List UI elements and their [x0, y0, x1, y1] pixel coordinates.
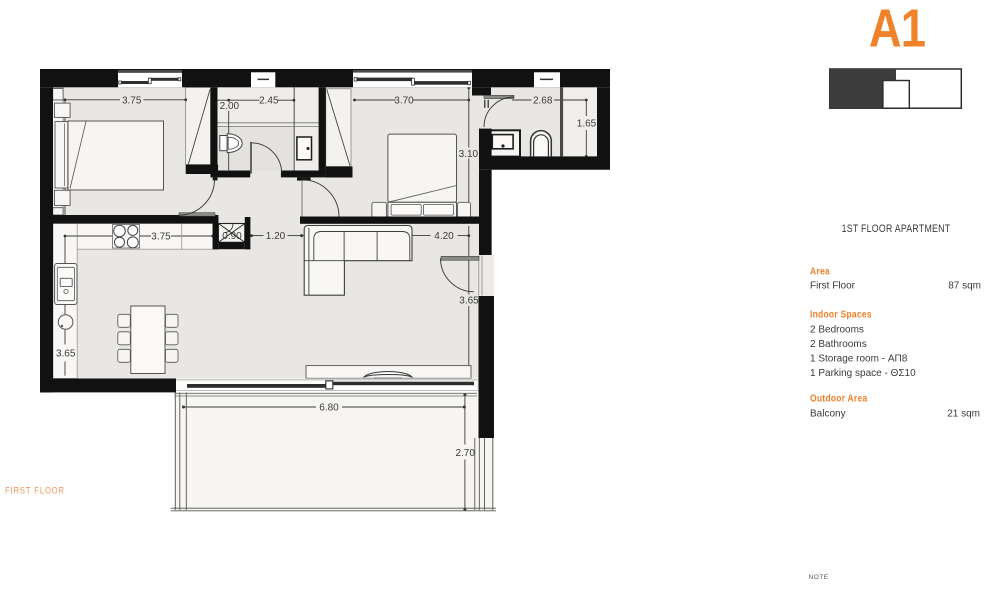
svg-text:2 Bedrooms: 2 Bedrooms: [810, 325, 864, 336]
svg-text:87 sqm: 87 sqm: [948, 281, 981, 292]
svg-text:3.70: 3.70: [394, 96, 414, 107]
svg-text:2.00: 2.00: [220, 101, 240, 112]
svg-text:1 Storage room - ΑΠ8: 1 Storage room - ΑΠ8: [810, 353, 908, 364]
svg-text:1.20: 1.20: [266, 231, 286, 242]
svg-text:3.65: 3.65: [56, 349, 76, 360]
svg-text:1.65: 1.65: [577, 119, 597, 130]
svg-text:A1: A1: [869, 0, 925, 58]
svg-text:2.45: 2.45: [259, 96, 279, 107]
svg-text:1ST FLOOR APARTMENT: 1ST FLOOR APARTMENT: [842, 223, 951, 235]
svg-text:3.10: 3.10: [459, 149, 479, 160]
svg-text:3.75: 3.75: [122, 95, 142, 106]
svg-text:First Floor: First Floor: [810, 281, 856, 292]
svg-text:Area: Area: [810, 266, 830, 277]
svg-text:4.20: 4.20: [434, 231, 454, 242]
svg-text:21 sqm: 21 sqm: [947, 409, 980, 420]
svg-text:6.80: 6.80: [319, 403, 339, 414]
svg-text:Balcony: Balcony: [810, 409, 846, 420]
svg-text:3.75: 3.75: [151, 232, 171, 243]
svg-text:0.90: 0.90: [222, 231, 242, 242]
svg-text:2.70: 2.70: [455, 448, 475, 459]
svg-text:Outdoor Area: Outdoor Area: [810, 393, 868, 404]
svg-text:FIRST FLOOR: FIRST FLOOR: [5, 485, 65, 496]
svg-text:3.65: 3.65: [459, 296, 479, 307]
svg-text:Indoor Spaces: Indoor Spaces: [810, 309, 872, 320]
svg-text:2.68: 2.68: [533, 96, 553, 107]
svg-text:NOTE: NOTE: [809, 574, 829, 581]
svg-text:1 Parking space - ΘΣ10: 1 Parking space - ΘΣ10: [810, 368, 916, 379]
svg-text:2 Bathrooms: 2 Bathrooms: [810, 339, 867, 350]
